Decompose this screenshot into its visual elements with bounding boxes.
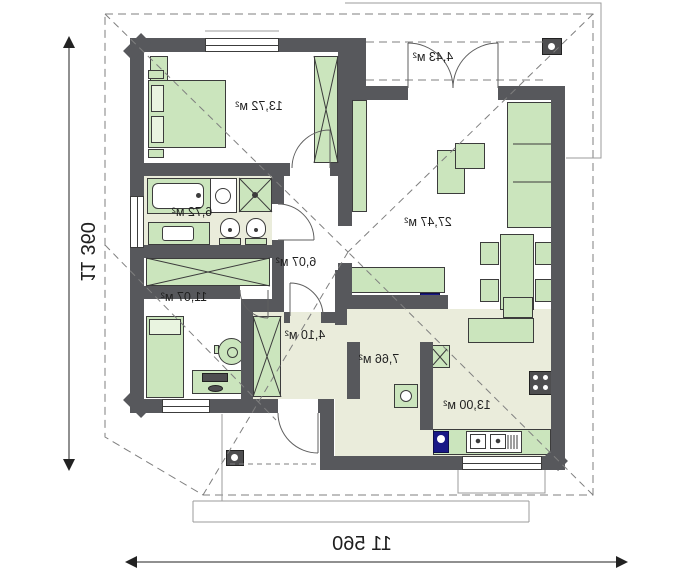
room-area-label-porch: 4,43 м²: [378, 50, 488, 64]
bathtub-drain: [196, 193, 201, 198]
wall: [130, 38, 144, 196]
toilet-tank: [219, 238, 241, 245]
wall: [320, 456, 462, 470]
wall: [130, 248, 144, 413]
wall: [144, 286, 240, 299]
pillow: [151, 85, 164, 112]
monitor: [202, 373, 228, 382]
wall: [420, 342, 433, 430]
burner: [543, 385, 548, 390]
wall: [347, 342, 360, 399]
pillow: [151, 116, 164, 143]
room-area-label-living-room: 27,47 м²: [373, 215, 483, 229]
wall: [551, 86, 565, 470]
chair: [480, 279, 499, 302]
bidet-tank: [245, 238, 267, 245]
sideboard: [347, 267, 445, 293]
window: [162, 399, 210, 413]
column-core: [231, 454, 238, 461]
kitchen-peninsula: [468, 318, 534, 343]
sink-basin: [470, 434, 486, 449]
wall: [144, 245, 284, 258]
burner: [543, 375, 548, 380]
wall: [338, 52, 352, 176]
chair: [480, 242, 499, 265]
entrance-door-opening: [278, 399, 318, 413]
wall: [210, 399, 278, 413]
burner: [533, 375, 538, 380]
wall: [272, 163, 284, 204]
sofa: [507, 102, 553, 228]
shower: [239, 178, 272, 212]
sink-basin: [490, 434, 506, 449]
shelf: [430, 345, 450, 368]
terrace-door-opening: [408, 86, 498, 100]
window: [130, 196, 144, 248]
wash-basin: [162, 226, 194, 241]
nightstand: [148, 149, 164, 158]
dimension-label-width: 11 560: [262, 533, 462, 557]
bidet-drain: [254, 228, 258, 232]
tv-unit: [352, 100, 367, 212]
built-in-wardrobe: [146, 258, 270, 286]
column-core: [548, 43, 555, 50]
nightstand: [148, 70, 164, 79]
toilet-drain: [228, 228, 232, 232]
wall: [318, 399, 334, 413]
washing-machine-door: [215, 188, 231, 204]
wall: [144, 163, 290, 176]
wall: [272, 240, 284, 299]
wall: [338, 176, 352, 226]
window: [205, 38, 279, 52]
washbasin-bowl: [400, 390, 412, 402]
floor-plan: 13,72 м² 4,43 м² 6,72 м² 27,47 м² 6,07 м…: [0, 0, 700, 575]
stove-oven: [529, 371, 552, 395]
burner: [533, 385, 538, 390]
kitchen-island-block: [503, 297, 533, 318]
dishwasher-dial: [437, 435, 445, 443]
wall: [542, 456, 565, 470]
wardrobe: [314, 56, 338, 163]
wall: [241, 299, 253, 399]
plant-center: [227, 347, 238, 358]
armchair-side-table: [455, 143, 485, 169]
wall: [320, 413, 334, 460]
wall: [284, 312, 290, 323]
hall-wardrobe: [253, 316, 281, 397]
window: [462, 456, 542, 470]
keyboard: [208, 385, 223, 392]
plant-pot-handle: [214, 345, 219, 354]
pillow: [149, 319, 181, 335]
wall: [352, 86, 408, 100]
wall: [321, 312, 335, 323]
dimension-label-height: 11 360: [74, 152, 98, 352]
wall: [335, 295, 448, 309]
